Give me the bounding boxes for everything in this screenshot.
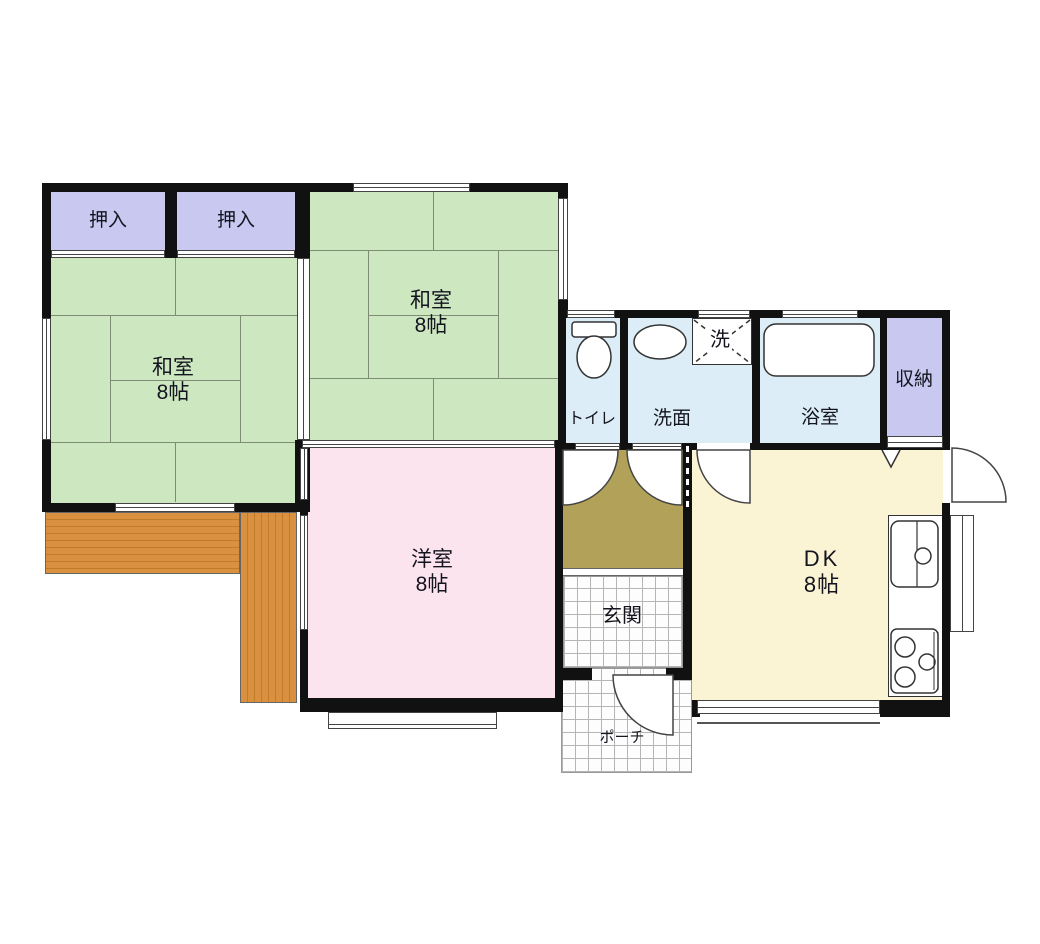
room-size: 8帖 — [152, 381, 194, 406]
room-name: 和室 — [152, 356, 194, 381]
western-room-label: 洋室 8帖 — [411, 548, 453, 598]
washroom-dk-door-arc — [697, 450, 750, 503]
bathtub-icon — [764, 324, 874, 376]
porch-door-arc — [613, 675, 673, 735]
fixtures-overlay — [0, 0, 1040, 944]
burner-icon — [895, 637, 915, 657]
washitsu-left-label: 和室 8帖 — [152, 356, 194, 406]
burner-icon — [919, 654, 935, 670]
toilet-tank-icon — [572, 322, 616, 337]
washroom-label: 洗面 — [653, 408, 691, 430]
toilet-bowl-icon — [577, 336, 611, 378]
laundry-label: 洗 — [708, 329, 732, 353]
washroom-door-arc — [627, 450, 682, 505]
closet-left-label: 押入 — [89, 210, 127, 232]
storage-door-v-icon — [882, 450, 900, 467]
room-name: DK — [804, 546, 841, 572]
floor-plan: 押入 押入 和室 8帖 和室 8帖 洋室 8帖 DK 8帖 トイレ 洗面 洗 浴… — [0, 0, 1040, 944]
dk-entry-door-arc — [952, 448, 1006, 502]
storage-label: 収納 — [895, 369, 933, 391]
entrance-label: 玄関 — [602, 605, 642, 629]
room-name: 洋室 — [411, 548, 453, 573]
room-name: 和室 — [410, 289, 452, 314]
washitsu-top-label: 和室 8帖 — [410, 289, 452, 339]
bath-label: 浴室 — [801, 407, 839, 429]
dk-label: DK 8帖 — [804, 546, 841, 598]
room-size: 8帖 — [804, 572, 841, 598]
burner-icon — [895, 667, 915, 687]
porch-label: ポーチ — [599, 729, 644, 747]
room-size: 8帖 — [410, 314, 452, 339]
room-size: 8帖 — [411, 573, 453, 598]
toilet-label: トイレ — [568, 411, 616, 430]
toilet-door-arc — [563, 450, 618, 505]
washbasin-icon — [634, 325, 686, 359]
closet-right-label: 押入 — [217, 210, 255, 232]
faucet-icon — [915, 548, 931, 564]
